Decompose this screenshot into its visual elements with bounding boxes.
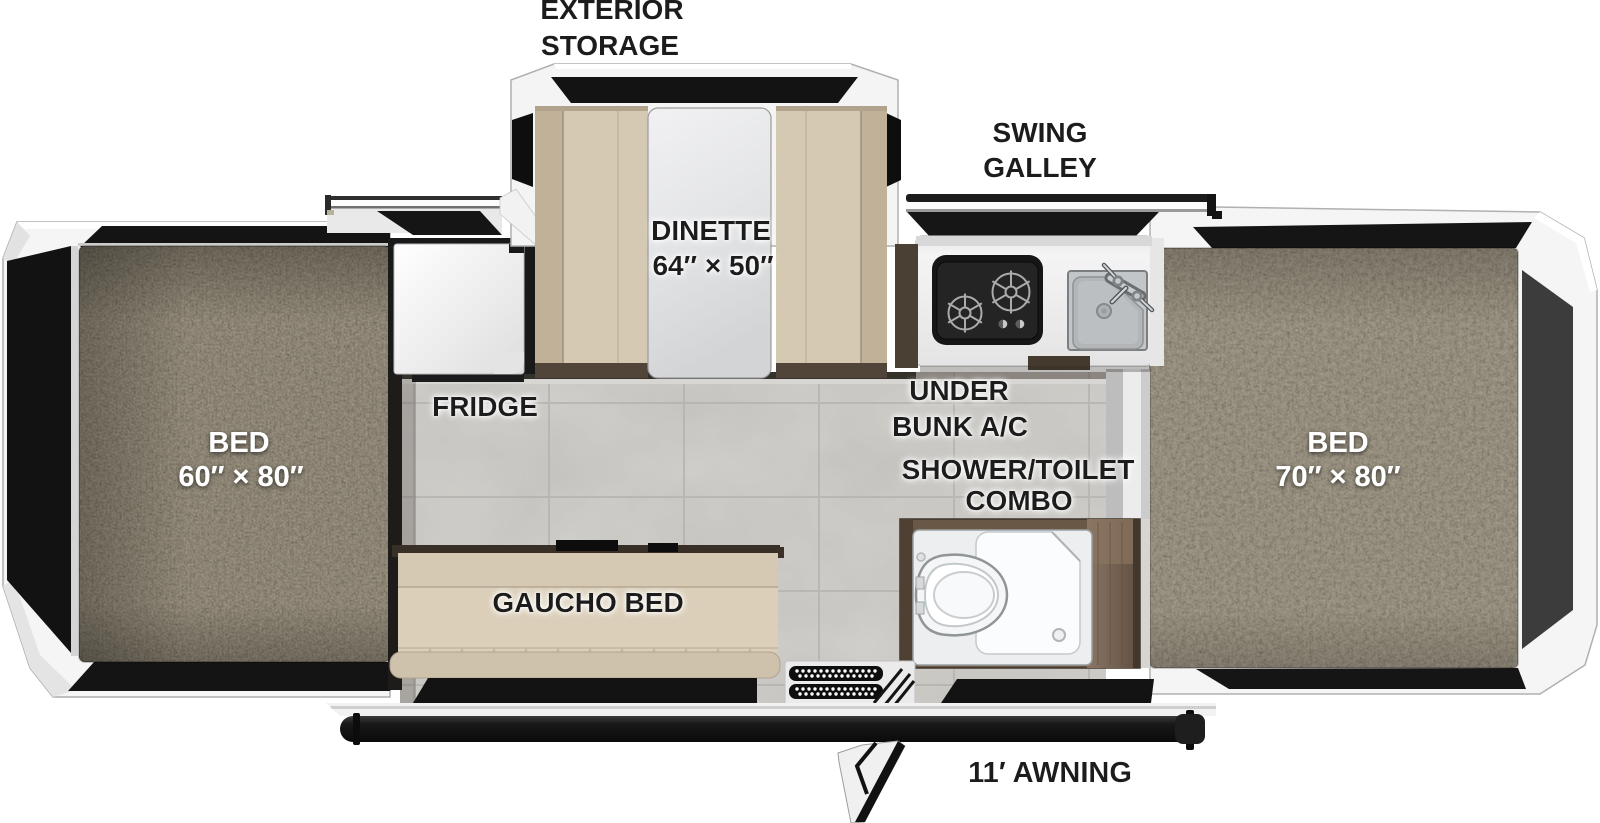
svg-text:BED: BED bbox=[1307, 427, 1368, 459]
svg-text:STORAGE: STORAGE bbox=[541, 30, 679, 61]
svg-text:GAUCHO BED: GAUCHO BED bbox=[492, 587, 683, 618]
svg-text:BED: BED bbox=[208, 427, 269, 459]
svg-text:SWING: SWING bbox=[993, 117, 1088, 148]
svg-text:70″ × 80″: 70″ × 80″ bbox=[1275, 461, 1400, 493]
svg-text:EXTERIOR: EXTERIOR bbox=[540, 0, 683, 25]
svg-text:GALLEY: GALLEY bbox=[983, 152, 1097, 183]
svg-text:DINETTE: DINETTE bbox=[651, 215, 771, 246]
svg-text:BUNK A/C: BUNK A/C bbox=[892, 411, 1028, 442]
svg-text:SHOWER/TOILET: SHOWER/TOILET bbox=[902, 454, 1135, 485]
svg-text:UNDER: UNDER bbox=[909, 375, 1009, 406]
svg-text:FRIDGE: FRIDGE bbox=[432, 391, 538, 422]
svg-text:COMBO: COMBO bbox=[965, 485, 1072, 516]
svg-text:11′ AWNING: 11′ AWNING bbox=[968, 757, 1132, 789]
svg-text:60″ × 80″: 60″ × 80″ bbox=[178, 461, 303, 493]
svg-text:64″ × 50″: 64″ × 50″ bbox=[652, 250, 773, 281]
